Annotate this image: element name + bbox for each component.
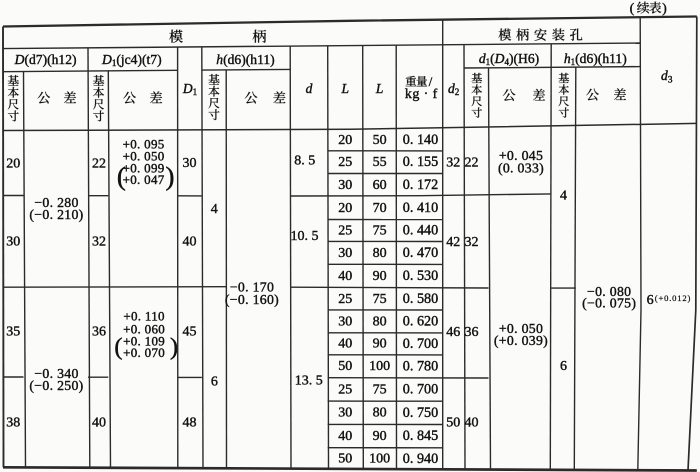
svg-text:D(d7)(h12): D(d7)(h12)	[14, 52, 77, 68]
svg-text:(0. 033): (0. 033)	[498, 160, 544, 176]
svg-text:0. 845: 0. 845	[403, 428, 438, 444]
svg-text:20: 20	[6, 157, 20, 172]
svg-text:22: 22	[465, 156, 479, 171]
svg-text:90: 90	[373, 337, 387, 352]
svg-text:0. 750: 0. 750	[403, 405, 438, 421]
svg-text:36: 36	[465, 325, 479, 340]
svg-text:(: (	[630, 1, 635, 16]
svg-text:50: 50	[338, 452, 352, 467]
svg-text:(−0. 075): (−0. 075)	[582, 296, 636, 312]
svg-text:0. 470: 0. 470	[403, 245, 438, 261]
svg-text:L: L	[375, 81, 384, 96]
svg-text:55: 55	[373, 155, 387, 170]
svg-text:20: 20	[338, 201, 352, 216]
svg-text:32: 32	[465, 235, 479, 250]
svg-text:0. 700: 0. 700	[403, 382, 438, 398]
svg-text:8. 5: 8. 5	[294, 153, 315, 168]
svg-text:40: 40	[465, 416, 479, 431]
svg-text:70: 70	[373, 201, 387, 216]
svg-text:0. 440: 0. 440	[403, 223, 438, 239]
svg-text:6: 6	[647, 293, 654, 308]
svg-text:(+0.012): (+0.012)	[655, 293, 691, 303]
svg-text:32: 32	[446, 156, 460, 171]
svg-text:25: 25	[338, 155, 352, 170]
svg-text:30: 30	[338, 246, 352, 261]
svg-text:40: 40	[92, 416, 106, 431]
svg-text:30: 30	[338, 314, 352, 329]
svg-text:+0. 047: +0. 047	[123, 172, 165, 187]
svg-text:(−0. 160): (−0. 160)	[225, 292, 279, 308]
svg-text:25: 25	[338, 292, 352, 307]
svg-text:h(d6)(h11): h(d6)(h11)	[216, 52, 274, 68]
svg-text:0. 410: 0. 410	[403, 200, 438, 216]
svg-text:0. 580: 0. 580	[403, 291, 438, 307]
svg-text:d: d	[306, 81, 313, 96]
svg-text:10. 5: 10. 5	[291, 229, 319, 244]
svg-text:48: 48	[183, 416, 197, 431]
svg-text:45: 45	[183, 325, 197, 340]
svg-text:20: 20	[338, 133, 352, 148]
svg-text:25: 25	[338, 223, 352, 238]
svg-text:30: 30	[338, 178, 352, 193]
svg-text:(−0. 250): (−0. 250)	[29, 378, 83, 394]
svg-text:): )	[170, 333, 178, 360]
svg-text:0. 155: 0. 155	[403, 154, 438, 170]
svg-text:50: 50	[338, 359, 352, 374]
svg-text:4: 4	[211, 202, 218, 217]
svg-text:38: 38	[6, 416, 20, 431]
svg-text:(: (	[114, 333, 122, 360]
svg-text:100: 100	[369, 452, 390, 467]
svg-text:(−0. 210): (−0. 210)	[29, 207, 83, 223]
svg-text:): )	[166, 161, 175, 191]
svg-text:(+0. 039): (+0. 039)	[494, 333, 548, 349]
svg-text:40: 40	[338, 429, 352, 444]
svg-text:13. 5: 13. 5	[295, 374, 323, 389]
svg-text:+0. 070: +0. 070	[123, 345, 165, 360]
svg-text:): )	[662, 1, 667, 16]
svg-text:80: 80	[373, 406, 387, 421]
svg-text:30: 30	[338, 406, 352, 421]
svg-text:kg · f: kg · f	[405, 87, 438, 102]
svg-text:40: 40	[183, 235, 197, 250]
svg-text:40: 40	[338, 269, 352, 284]
svg-text:L: L	[341, 81, 350, 96]
svg-text:50: 50	[373, 133, 387, 148]
svg-text:0. 620: 0. 620	[403, 313, 438, 329]
svg-text:6: 6	[211, 375, 218, 390]
svg-text:46: 46	[446, 325, 460, 340]
svg-text:75: 75	[373, 292, 387, 307]
svg-text:42: 42	[446, 235, 460, 250]
svg-text:0. 172: 0. 172	[403, 177, 438, 193]
svg-text:80: 80	[373, 314, 387, 329]
svg-text:75: 75	[373, 223, 387, 238]
svg-text:0. 780: 0. 780	[403, 358, 438, 374]
svg-text:75: 75	[373, 382, 387, 397]
svg-text:60: 60	[373, 178, 387, 193]
svg-text:90: 90	[373, 429, 387, 444]
svg-text:4: 4	[560, 189, 567, 204]
svg-text:0. 530: 0. 530	[403, 268, 438, 284]
svg-text:30: 30	[183, 156, 197, 171]
svg-text:30: 30	[6, 235, 20, 250]
svg-text:32: 32	[92, 235, 106, 250]
svg-text:6: 6	[560, 359, 567, 374]
svg-text:0. 140: 0. 140	[403, 132, 438, 148]
svg-text:0. 700: 0. 700	[403, 336, 438, 352]
svg-text:50: 50	[446, 416, 460, 431]
svg-text:40: 40	[338, 337, 352, 352]
svg-text:22: 22	[92, 156, 106, 171]
svg-text:(: (	[117, 161, 126, 191]
svg-text:100: 100	[369, 359, 390, 374]
svg-text:0. 940: 0. 940	[403, 451, 438, 467]
svg-text:D1(jc4)(t7): D1(jc4)(t7)	[101, 52, 162, 68]
svg-text:90: 90	[373, 269, 387, 284]
svg-text:35: 35	[6, 325, 20, 340]
svg-text:80: 80	[373, 246, 387, 261]
svg-text:36: 36	[92, 325, 106, 340]
svg-text:25: 25	[338, 382, 352, 397]
